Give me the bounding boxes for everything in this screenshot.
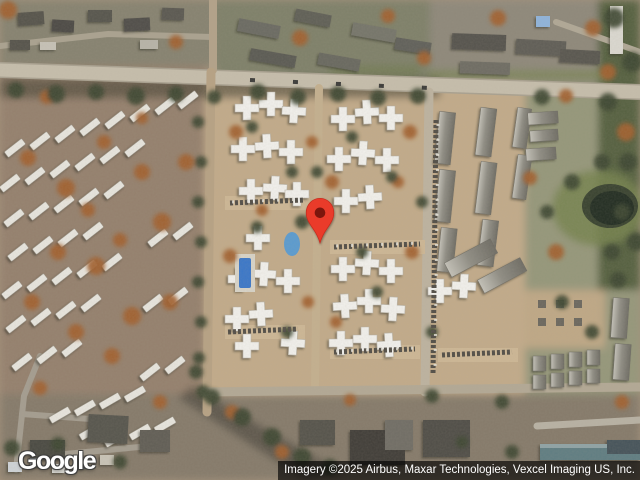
google-logo[interactable]: Google <box>18 447 95 476</box>
attribution-text: Imagery ©2025 Airbus, Maxar Technologies… <box>284 464 635 476</box>
attribution-bar: Imagery ©2025 Airbus, Maxar Technologies… <box>278 461 640 480</box>
location-pin-icon[interactable] <box>300 194 340 246</box>
map-viewport[interactable]: Google Imagery ©2025 Airbus, Maxar Techn… <box>0 0 640 480</box>
